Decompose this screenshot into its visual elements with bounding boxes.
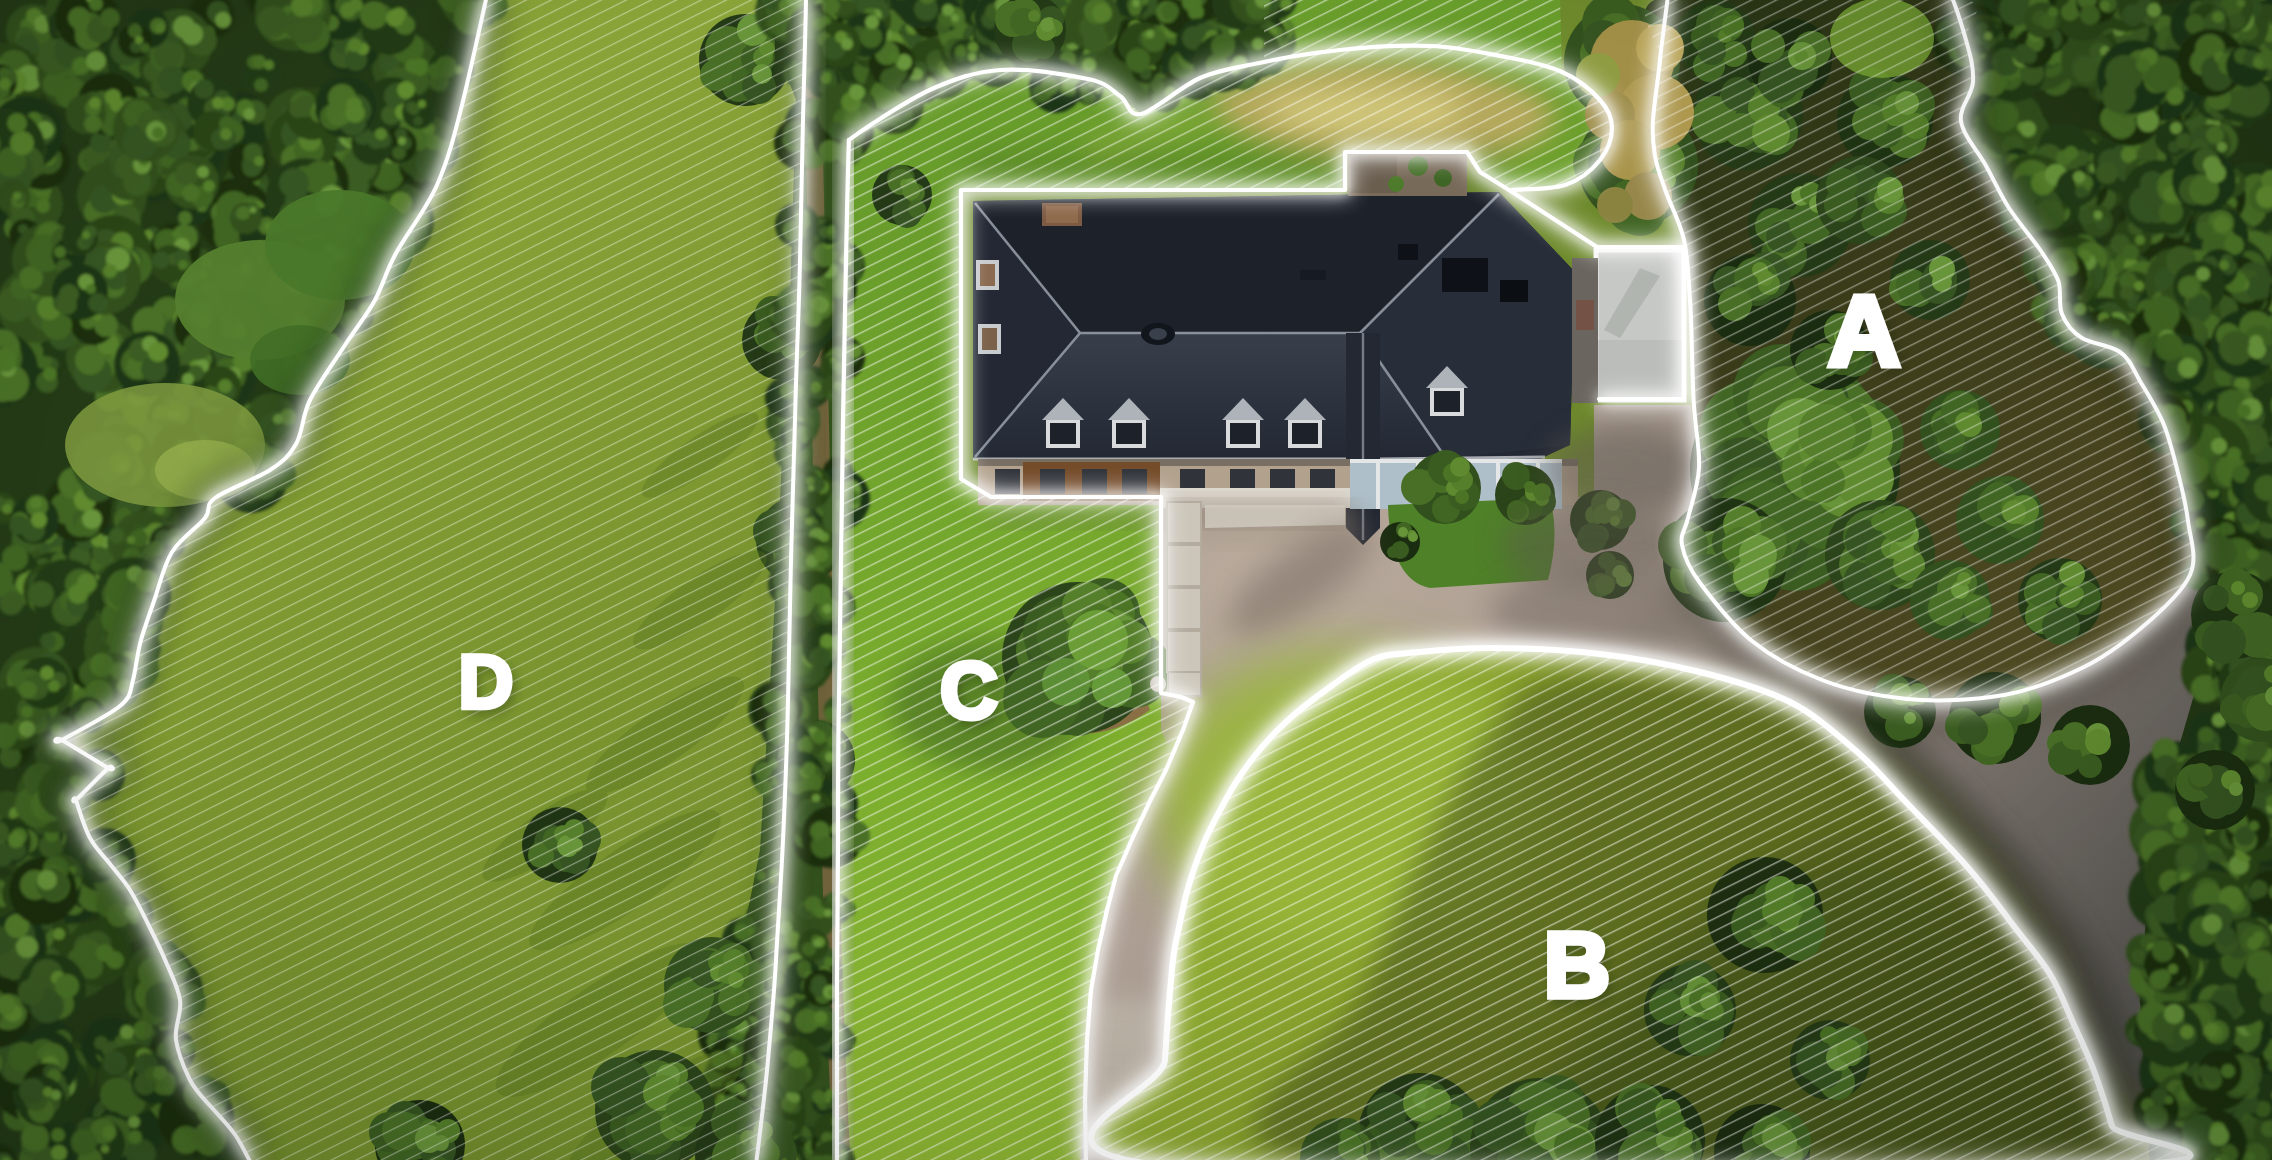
svg-text:B: B <box>1544 914 1610 1016</box>
svg-text:D: D <box>459 639 514 724</box>
svg-text:A: A <box>1828 275 1900 387</box>
svg-text:C: C <box>940 646 998 735</box>
